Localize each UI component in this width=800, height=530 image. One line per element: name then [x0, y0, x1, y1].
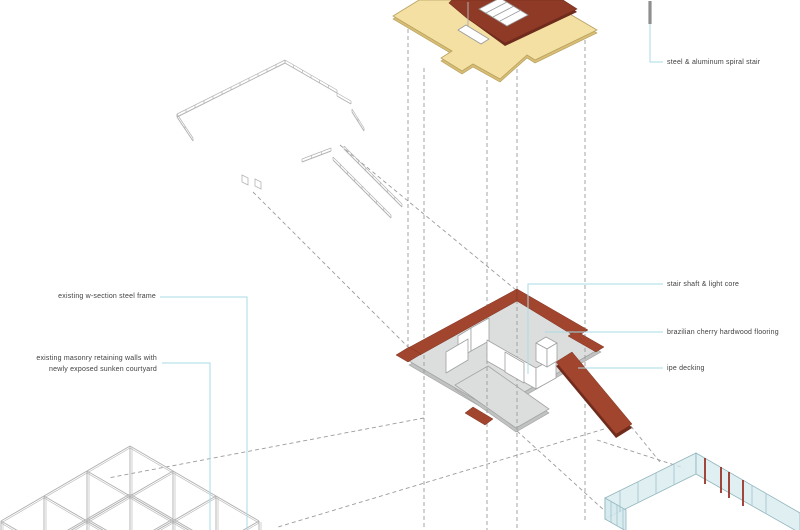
w-section-steel-frame: [1, 446, 261, 530]
glass-enclosure: [605, 453, 800, 530]
projection-dashed-lines: [108, 22, 684, 530]
leader-lines: [160, 1, 663, 530]
label-hardwood-flooring: brazilian cherry hardwood flooring: [667, 327, 779, 338]
label-spiral-stair: steel & aluminum spiral stair: [667, 57, 760, 68]
label-masonry-line2: newly exposed sunken courtyard: [49, 366, 157, 373]
label-stair-core: stair shaft & light core: [667, 279, 739, 290]
label-ipe-decking: ipe decking: [667, 363, 705, 374]
label-w-section-steel-frame: existing w-section steel frame: [58, 291, 156, 302]
railing-parapet-layer: [177, 60, 402, 218]
exploded-axon-diagram: steel & aluminum spiral stair existing w…: [0, 0, 800, 530]
axon-drawing: [0, 0, 800, 530]
spiral-stair-leader: [650, 24, 663, 62]
label-masonry-line1: existing masonry retaining walls with: [36, 355, 157, 362]
label-masonry-retaining-walls: existing masonry retaining walls with ne…: [36, 353, 157, 375]
masonry-leader: [162, 363, 210, 530]
